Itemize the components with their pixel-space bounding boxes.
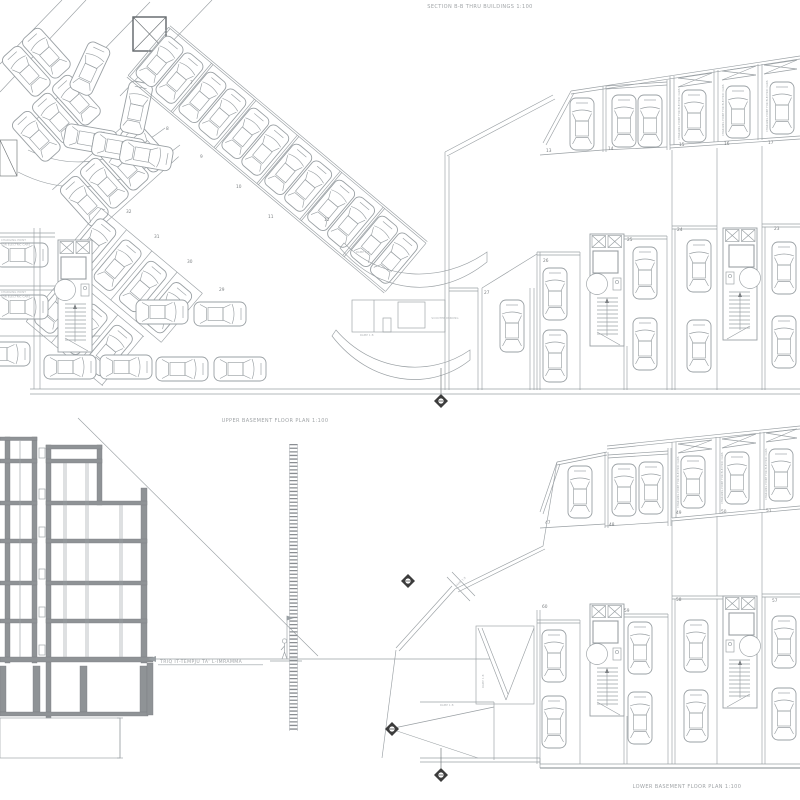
stair-core [723,596,761,708]
car [628,692,652,744]
section-linework [0,418,490,758]
car [772,316,796,368]
car [194,302,246,326]
bay-number: 49 [676,510,682,516]
bay-number: 48 [609,522,615,528]
bay-number: 32 [126,209,132,215]
car [0,295,48,319]
upper-plan-center-ramp: RAMP 1:8 RAMP 1:8 SCOOTER PARKING [332,95,555,408]
ramp-label: RAMP 1:8 [440,703,454,707]
car [682,90,706,142]
car [500,300,524,352]
ramp-label: RAMP 1:8 [356,250,370,254]
lower-plan-garage-row: CHARGING POINT FOR ELECTRIC CARS CHARGIN… [540,426,800,528]
drawing-canvas: SECTION B-B THRU BUILDINGS 1:100 UPPER B… [0,0,800,800]
lower-plan-mid-bays: 60 59 58 57 [537,512,800,768]
bay-number: 8 [166,126,169,132]
car [628,622,652,674]
bay-number: 15 [679,142,685,148]
car [687,320,711,372]
stair-core [587,234,625,346]
car [119,80,153,136]
car [543,268,567,320]
stair-core [55,240,93,352]
street-name-label: TRIQ IT-TEMPJU TA' L-IMRAMMA [159,659,243,665]
bay-number: 12 [324,217,330,223]
car [0,342,30,366]
section-marker-icon [434,768,448,782]
car [568,466,592,518]
ramp-label: RAMP 1:8 [481,674,485,688]
section-title: SECTION B-B THRU BUILDINGS 1:100 [427,4,533,10]
bay-number: 57 [772,598,778,604]
lower-plan-entrance-ramp: RAMP 1:8 RAMP 1:8 RAMP 1:8 [382,462,557,782]
ev-vertical-label: CHARGING POINT FOR ELECTRIC CARS [721,84,725,136]
ev-charging-label: FOR ELECTRIC CARS [1,295,30,299]
ramp-label: RAMP 1:8 [360,333,374,337]
cad-sheet: SECTION B-B THRU BUILDINGS 1:100 UPPER B… [0,0,800,800]
lower-plan-title: LOWER BASEMENT FLOOR PLAN 1:100 [633,784,742,790]
bay-number: 30 [187,259,193,265]
bay-number: 29 [219,287,225,293]
car [68,40,112,97]
upper-plan-garage-row: CHARGING POINT FOR ELECTRIC CARS CHARGIN… [540,56,800,155]
level-staff [290,444,298,731]
bay-number: 26 [543,258,549,264]
car [725,452,749,504]
bay-number: 16 [724,141,730,147]
bay-number: 31 [154,234,160,240]
car [156,357,208,381]
street-label-group: TRIQ IT-TEMPJU TA' L-IMRAMMA [148,656,263,665]
bay-number: 50 [721,509,727,515]
bay-number: 25 [627,237,633,243]
lower-basement-plan: CHARGING POINT FOR ELECTRIC CARS CHARGIN… [382,426,800,782]
bay-number: 14 [608,146,614,152]
car [681,456,705,508]
section-marker-icon [434,394,448,408]
car [612,464,636,516]
bay-number: 10 [236,184,242,190]
sheet-titles: SECTION B-B THRU BUILDINGS 1:100 UPPER B… [222,4,742,790]
car [687,240,711,292]
car [684,690,708,742]
ev-vertical-label: CHARGING POINT FOR ELECTRIC CARS [676,456,680,508]
stair-core [587,604,625,716]
ev-charging-label: FOR ELECTRIC CARS [1,243,30,247]
upper-plan-top-left-parking [0,0,212,234]
car [639,462,663,514]
car [633,247,657,299]
section-marker-icon [401,574,415,588]
ev-vertical-label: CHARGING POINT FOR ELECTRIC CARS [765,80,769,132]
car [772,242,796,294]
car [770,82,794,134]
car [769,449,793,501]
car [612,95,636,147]
bay-number: 24 [677,227,683,233]
car [633,318,657,370]
bay-number: 59 [624,608,630,614]
bay-number: 51 [766,508,772,514]
car [772,616,796,668]
person-figure [281,616,293,659]
bay-number: 58 [676,597,682,603]
ev-vertical-label: CHARGING POINT FOR ELECTRIC CARS [764,448,768,500]
car [0,243,48,267]
car [772,688,796,740]
ev-charging-label: CHARGING POINT [1,238,26,242]
stair-core [723,228,761,340]
scooter-parking-label: SCOOTER PARKING [431,316,458,320]
car [543,330,567,382]
bay-number: 47 [545,520,551,526]
car [542,696,566,748]
bay-number: 23 [774,226,780,232]
car [726,86,750,138]
ev-vertical-label: CHARGING POINT FOR ELECTRIC CARS [677,88,681,140]
ev-vertical-label: CHARGING POINT FOR ELECTRIC CARS [720,452,724,504]
bay-number: 13 [546,148,552,154]
bay-number: 60 [542,604,548,610]
car [638,95,662,147]
car [136,300,188,324]
car [542,630,566,682]
section-b-b: TRIQ IT-TEMPJU TA' L-IMRAMMA [0,418,490,758]
section-walls [0,437,153,718]
upper-plan-title: UPPER BASEMENT FLOOR PLAN 1:100 [222,418,329,424]
upper-basement-plan: 7 8 9 10 11 12 [0,0,800,408]
car [100,355,152,379]
car [44,355,96,379]
upper-plan-mid-bays: 27 26 25 24 23 [449,146,800,390]
car [570,98,594,150]
bay-number: 9 [200,154,203,160]
ev-charging-label: CHARGING POINT [1,290,26,294]
car [684,620,708,672]
car [214,357,266,381]
section-marker-icon [385,722,399,736]
bay-number: 11 [268,214,274,220]
bay-number: 17 [768,140,774,146]
bay-number: 27 [484,290,490,296]
bay-number: 7 [190,80,193,86]
